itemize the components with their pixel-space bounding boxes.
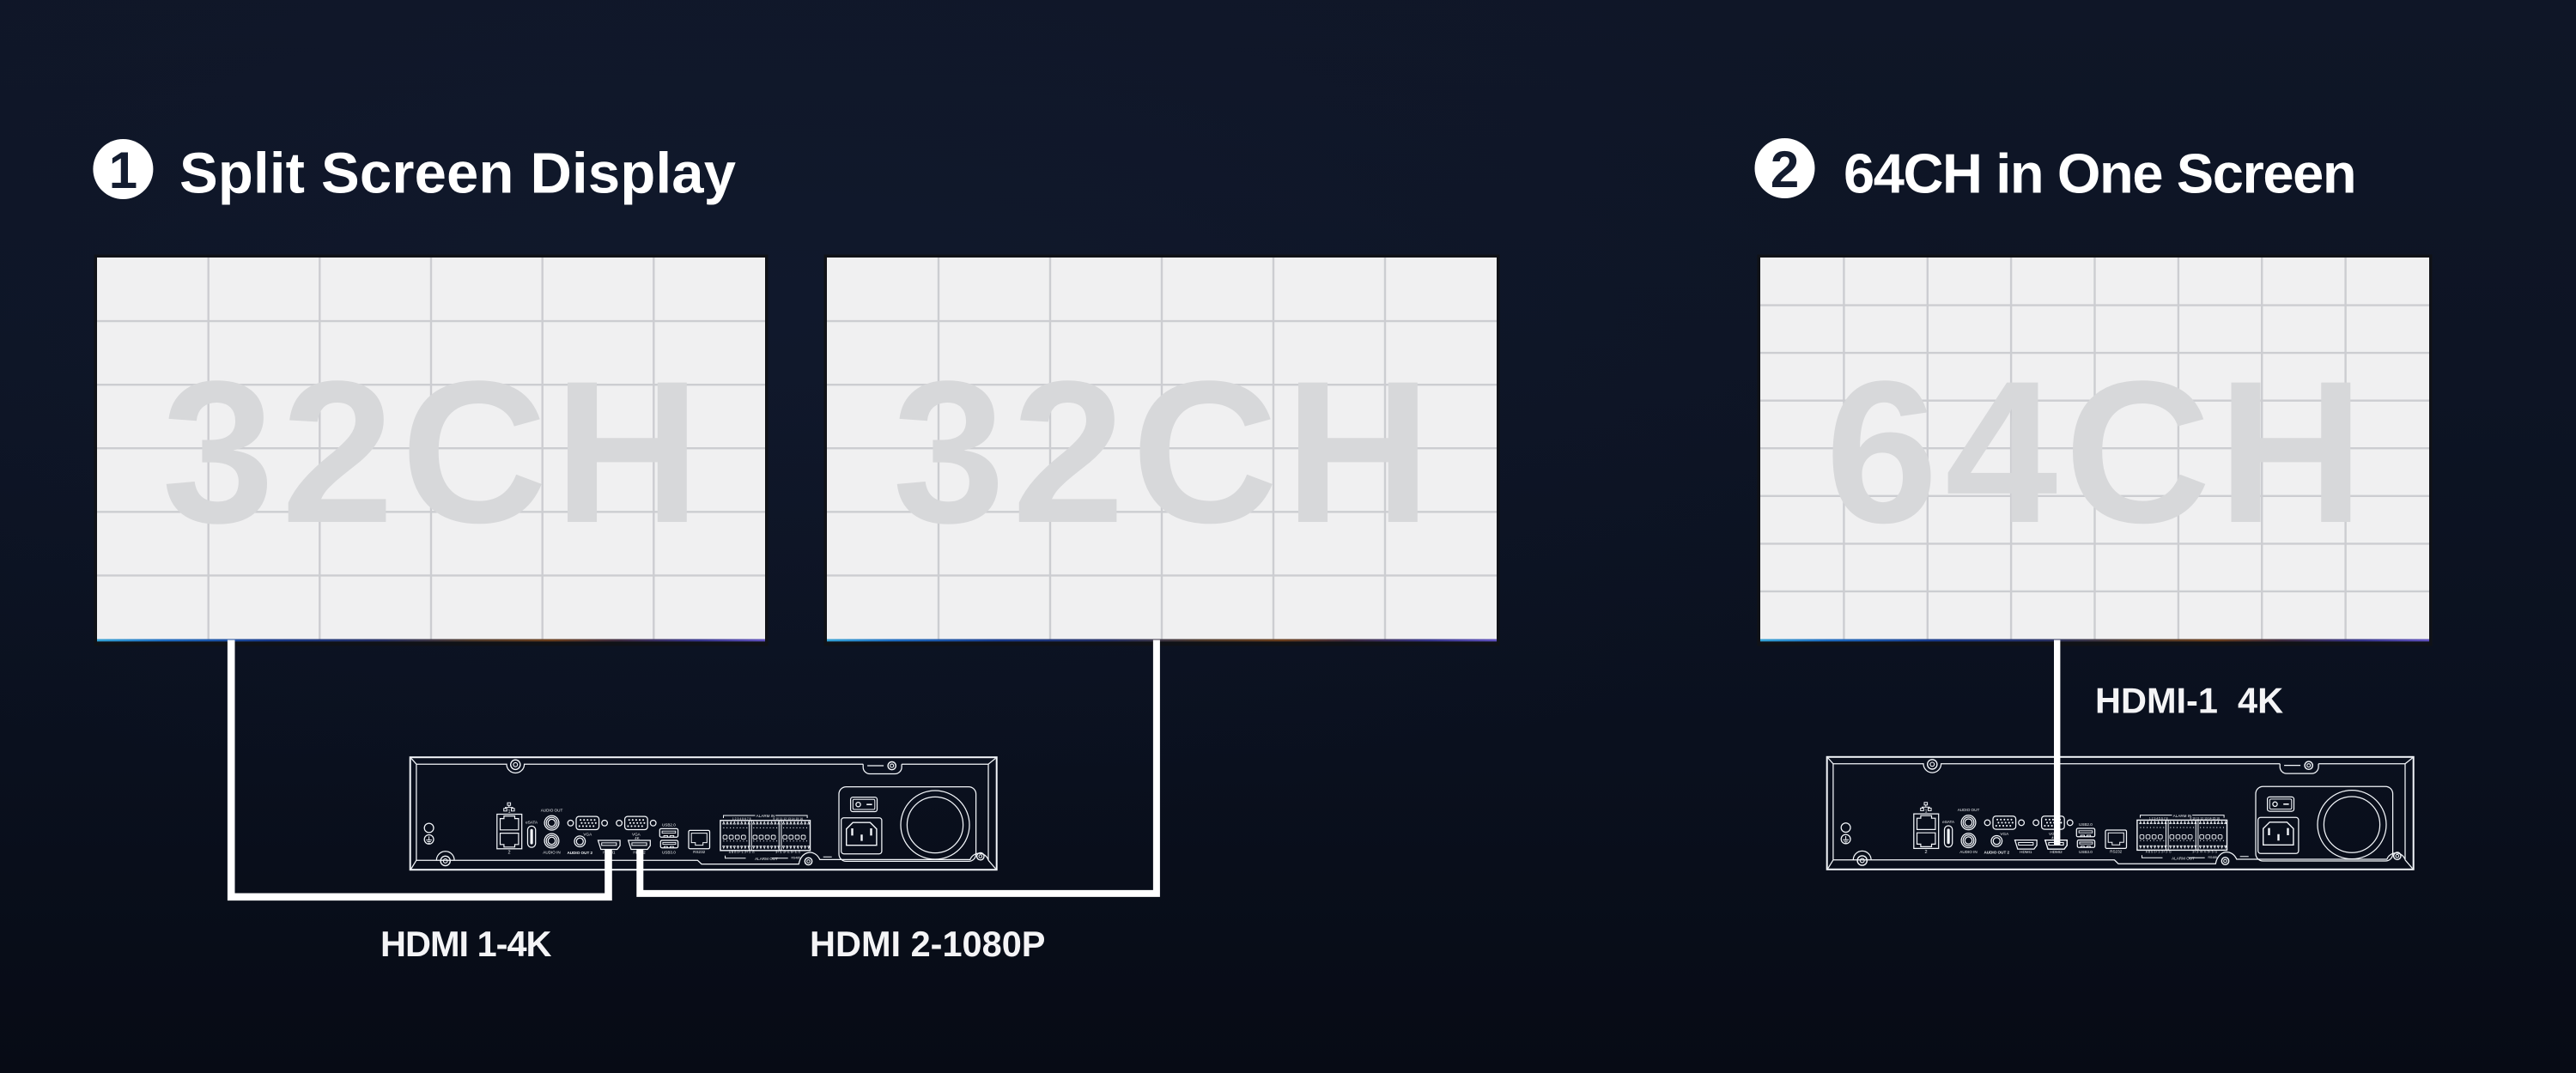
svg-text:2: 2 xyxy=(1771,141,1799,198)
svg-text:Split Screen Display: Split Screen Display xyxy=(179,142,736,206)
svg-text:32CH: 32CH xyxy=(161,339,707,566)
svg-text:32CH: 32CH xyxy=(892,339,1437,566)
svg-text:64CH in One Screen: 64CH in One Screen xyxy=(1844,142,2355,205)
svg-text:HDMI 2-1080P: HDMI 2-1080P xyxy=(810,924,1045,964)
svg-text:1: 1 xyxy=(109,142,137,199)
svg-text:64CH: 64CH xyxy=(1826,339,2371,566)
svg-text:HDMI-1 4K: HDMI-1 4K xyxy=(2095,681,2283,721)
svg-text:HDMI 1-4K: HDMI 1-4K xyxy=(380,924,552,964)
